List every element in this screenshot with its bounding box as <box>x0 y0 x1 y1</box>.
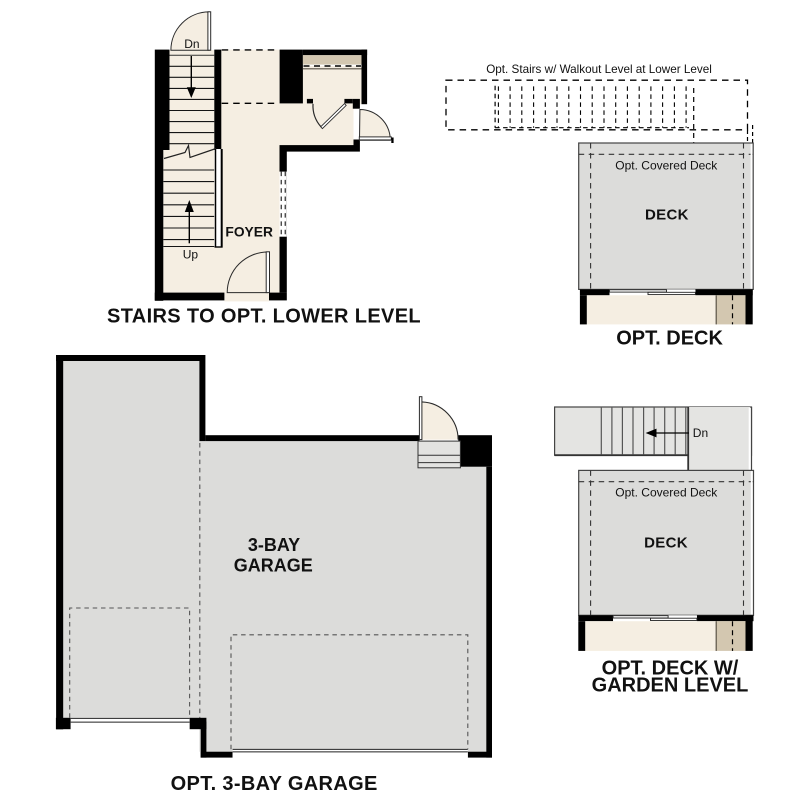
svg-text:OPT. 3-BAY GARAGE: OPT. 3-BAY GARAGE <box>171 773 378 795</box>
svg-text:STAIRS TO OPT. LOWER LEVEL: STAIRS TO OPT. LOWER LEVEL <box>107 306 421 328</box>
svg-text:Opt. Stairs w/ Walkout Level a: Opt. Stairs w/ Walkout Level at Lower Le… <box>486 63 712 76</box>
svg-text:Dn: Dn <box>184 37 199 51</box>
svg-text:DECK: DECK <box>645 207 689 224</box>
svg-text:3-BAY: 3-BAY <box>248 535 300 555</box>
svg-text:OPT. DECK: OPT. DECK <box>616 327 723 349</box>
svg-text:Dn: Dn <box>693 426 708 440</box>
svg-text:GARAGE: GARAGE <box>234 556 313 576</box>
svg-text:DECK: DECK <box>644 535 688 552</box>
svg-text:Up: Up <box>183 248 199 262</box>
svg-text:Opt. Covered Deck: Opt. Covered Deck <box>615 158 718 172</box>
svg-text:GARDEN LEVEL: GARDEN LEVEL <box>592 675 749 697</box>
svg-text:Opt. Covered Deck: Opt. Covered Deck <box>615 485 718 499</box>
svg-text:FOYER: FOYER <box>225 224 273 239</box>
